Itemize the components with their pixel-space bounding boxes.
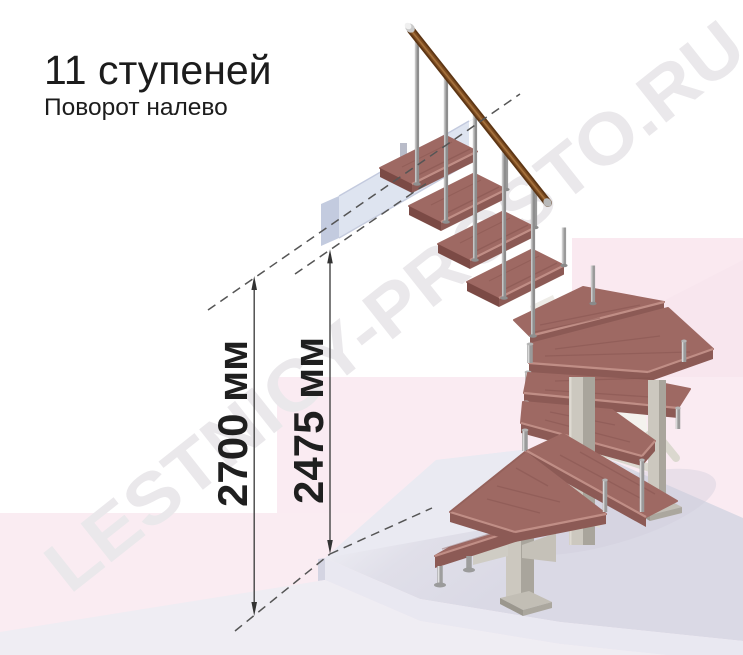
svg-text:Поворот налево: Поворот налево — [44, 94, 228, 121]
svg-text:11 ступеней: 11 ступеней — [44, 47, 272, 93]
svg-text:2700 мм: 2700 мм — [209, 340, 256, 507]
svg-text:2475 мм: 2475 мм — [285, 337, 332, 504]
